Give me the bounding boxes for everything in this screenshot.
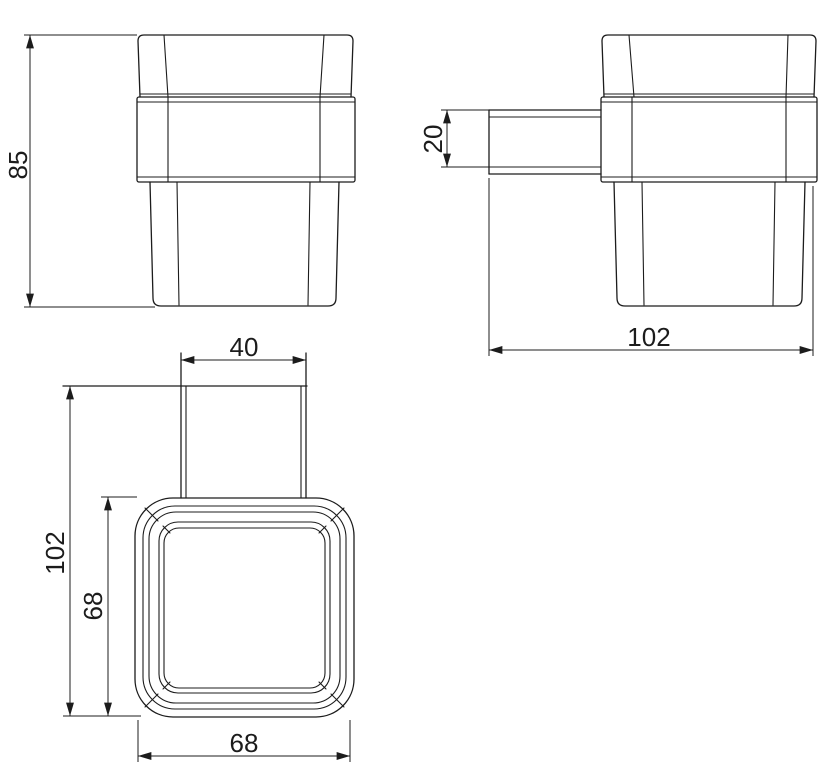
front-body-inner-left xyxy=(177,182,179,305)
plan-corner-ticks xyxy=(145,508,344,707)
front-rim-inner-left xyxy=(164,35,168,97)
dimension-side-depth-label: 102 xyxy=(627,322,670,352)
plan-bracket-arm xyxy=(63,353,307,498)
side-rim-outline xyxy=(602,35,816,97)
side-body-inner-left xyxy=(642,182,644,305)
plan-ring-4 xyxy=(159,522,330,693)
dimension-bracket-width: 40 xyxy=(181,332,306,362)
dimension-bracket-width-label: 40 xyxy=(230,332,259,362)
side-view: 20 102 xyxy=(418,35,817,356)
front-view: 85 xyxy=(3,35,355,307)
dimension-front-height-label: 85 xyxy=(3,151,33,180)
dimension-bracket-thickness: 20 xyxy=(418,110,489,167)
side-body-inner-right xyxy=(773,182,775,305)
plan-view: 40 102 68 68 xyxy=(40,332,354,762)
dimension-plan-depth: 102 xyxy=(40,386,141,716)
plan-ring-3 xyxy=(149,512,340,703)
dimension-bracket-thickness-label: 20 xyxy=(418,125,448,154)
plan-ring-inner xyxy=(164,528,325,688)
side-band-outline xyxy=(601,97,817,182)
drawing-page: 85 20 xyxy=(0,0,838,778)
dimension-body-width: 68 xyxy=(138,720,350,762)
side-rim-inner-left xyxy=(629,35,634,97)
dimension-body-depth-label: 68 xyxy=(78,592,108,621)
plan-ring-2 xyxy=(143,506,346,709)
side-rim-inner-right xyxy=(786,35,788,97)
dimension-side-depth: 102 xyxy=(489,178,813,356)
front-rim-inner-right xyxy=(320,35,324,97)
front-band-outline xyxy=(137,97,355,182)
front-body-inner-right xyxy=(308,182,310,305)
dimension-plan-depth-label: 102 xyxy=(40,531,70,574)
dimension-front-height: 85 xyxy=(3,35,155,307)
dimension-body-depth: 68 xyxy=(78,497,137,716)
technical-drawing-canvas: 85 20 xyxy=(0,0,838,778)
dimension-body-width-label: 68 xyxy=(230,728,259,758)
side-bracket-arm xyxy=(489,110,601,174)
